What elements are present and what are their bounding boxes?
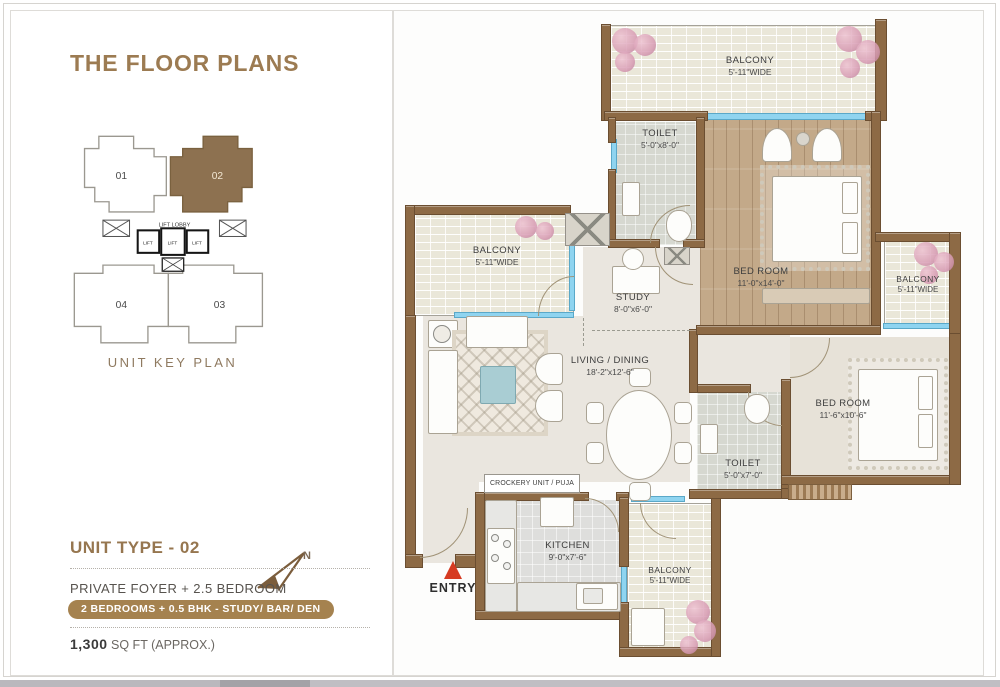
room-label-balcony-top: BALCONY 5'-11"WIDE bbox=[695, 55, 805, 78]
room-dim: 5'-0"x8'-0" bbox=[618, 140, 702, 151]
wall bbox=[609, 118, 615, 142]
window bbox=[612, 140, 616, 172]
duct-shaft bbox=[565, 213, 610, 246]
key-plan-unit-03-label: 03 bbox=[214, 300, 226, 311]
room-label-living-dining: LIVING / DINING 18'-2"x12'-6" bbox=[540, 355, 680, 378]
plant-decor bbox=[615, 52, 635, 72]
burner bbox=[503, 562, 511, 570]
sofa bbox=[428, 350, 458, 434]
room-label-balcony-left: BALCONY 5'-11"WIDE bbox=[447, 245, 547, 268]
dining-table bbox=[606, 390, 672, 480]
bottom-bar bbox=[0, 680, 1000, 687]
room-name: STUDY bbox=[590, 292, 676, 304]
sink-basin bbox=[583, 588, 603, 604]
wash-basin bbox=[622, 182, 640, 216]
unit-type-title: UNIT TYPE - 02 bbox=[70, 538, 200, 558]
key-plan-unit-02-label: 02 bbox=[212, 171, 224, 182]
room-label-bed-room-1: BED ROOM 11'-0"x14'-0" bbox=[706, 266, 816, 289]
room-dim: 5'-11"WIDE bbox=[627, 576, 713, 586]
key-plan-stairs-left bbox=[103, 220, 130, 236]
space-divider bbox=[592, 330, 690, 331]
room-dim: 5'-11"WIDE bbox=[695, 67, 805, 78]
pillow bbox=[842, 182, 858, 214]
separator bbox=[70, 568, 370, 569]
clock-decor bbox=[433, 325, 451, 343]
area-text: 1,300 SQ FT (APPROX.) bbox=[70, 636, 215, 652]
plant-decor bbox=[856, 40, 880, 64]
room-dim: 9'-0"x7'-6" bbox=[520, 552, 615, 563]
page-title: THE FLOOR PLANS bbox=[70, 50, 299, 77]
pillow bbox=[842, 222, 858, 254]
window bbox=[705, 114, 867, 119]
key-plan-unit-04-label: 04 bbox=[116, 300, 128, 311]
plant-decor bbox=[694, 620, 716, 642]
room-name: BALCONY bbox=[627, 565, 713, 576]
lift-label-3: LIFT bbox=[192, 241, 202, 246]
key-plan-stairs-right bbox=[219, 220, 246, 236]
wall bbox=[876, 20, 886, 120]
room-label-bed-room-2: BED ROOM 11'-6"x10'-6" bbox=[788, 398, 898, 421]
wall bbox=[697, 326, 880, 334]
separator bbox=[70, 627, 370, 628]
area-suffix: SQ FT (APPROX.) bbox=[108, 638, 215, 652]
wall bbox=[690, 490, 790, 498]
room-dim: 18'-2"x12'-6" bbox=[540, 367, 680, 378]
unit-key-plan: LIFT LOBBY LIFT LIFT LIFT 01 02 04 03 bbox=[62, 122, 287, 352]
room-name: BALCONY bbox=[695, 55, 805, 67]
desk bbox=[612, 266, 660, 294]
plant-decor bbox=[934, 252, 954, 272]
mirror bbox=[796, 132, 810, 146]
key-plan-caption: UNIT KEY PLAN bbox=[60, 355, 285, 370]
coffee-table bbox=[480, 366, 516, 404]
wall bbox=[602, 25, 610, 120]
unit-badge: 2 BEDROOMS + 0.5 BHK - STUDY/ BAR/ DEN bbox=[68, 600, 334, 619]
armchair bbox=[535, 390, 563, 422]
pillow bbox=[918, 414, 933, 448]
wall bbox=[690, 385, 750, 392]
wall bbox=[406, 316, 415, 563]
room-dim: 11'-0"x14'-0" bbox=[706, 278, 816, 289]
room-dim: 8'-0"x6'-0" bbox=[590, 304, 676, 315]
service-ledge bbox=[788, 484, 852, 500]
plant-decor bbox=[680, 636, 698, 654]
room-name: BED ROOM bbox=[706, 266, 816, 278]
lift-label-1: LIFT bbox=[143, 241, 153, 246]
room-label-study: STUDY 8'-0"x6'-0" bbox=[590, 292, 676, 315]
key-plan-unit-01-label: 01 bbox=[116, 171, 128, 182]
dining-chair bbox=[674, 442, 692, 464]
room-label-balcony-right: BALCONY 5'-11"WIDE bbox=[884, 274, 952, 295]
lift-label-2: LIFT bbox=[168, 241, 178, 246]
wall bbox=[620, 498, 628, 566]
toilet-wc bbox=[666, 210, 692, 242]
entry-arrow-icon bbox=[444, 561, 462, 579]
desk-chair bbox=[622, 248, 644, 270]
room-dim: 5'-0"x7'-0" bbox=[703, 470, 783, 481]
window bbox=[622, 563, 626, 603]
plant-decor bbox=[634, 34, 656, 56]
room-dim: 5'-11"WIDE bbox=[884, 285, 952, 295]
dining-chair bbox=[674, 402, 692, 424]
space-divider bbox=[583, 318, 584, 346]
room-label-toilet-2: TOILET 5'-0"x7'-0" bbox=[703, 458, 783, 481]
room-name: TOILET bbox=[703, 458, 783, 470]
room-dim: 5'-11"WIDE bbox=[447, 257, 547, 268]
unit-subtitle: PRIVATE FOYER + 2.5 BEDROOM bbox=[70, 581, 287, 596]
room-dim: 11'-6"x10'-6" bbox=[788, 410, 898, 421]
pillow bbox=[918, 376, 933, 410]
toilet-wc bbox=[744, 394, 770, 424]
dresser bbox=[762, 288, 870, 304]
wall bbox=[876, 233, 960, 241]
dining-chair bbox=[586, 402, 604, 424]
crockery-unit-label: CROCKERY UNIT / PUJA bbox=[484, 474, 580, 493]
wall bbox=[406, 206, 414, 324]
plant-decor bbox=[536, 222, 554, 240]
washing-machine bbox=[631, 608, 665, 646]
burner bbox=[503, 540, 511, 548]
room-name: BED ROOM bbox=[788, 398, 898, 410]
wall bbox=[782, 380, 790, 488]
wall bbox=[782, 476, 960, 484]
burner bbox=[491, 554, 499, 562]
room-label-kitchen: KITCHEN 9'-0"x7'-6" bbox=[520, 540, 615, 563]
room-name: KITCHEN bbox=[520, 540, 615, 552]
wall bbox=[476, 611, 628, 619]
window bbox=[884, 324, 950, 328]
room-label-toilet-1: TOILET 5'-0"x8'-0" bbox=[618, 128, 702, 151]
entry-label: ENTRY bbox=[420, 581, 486, 595]
dining-chair bbox=[586, 442, 604, 464]
burner bbox=[491, 534, 499, 542]
plant-decor bbox=[515, 216, 537, 238]
wall bbox=[872, 112, 880, 334]
plant-decor bbox=[840, 58, 860, 78]
room-label-balcony-bottom: BALCONY 5'-11"WIDE bbox=[627, 565, 713, 586]
wall bbox=[605, 112, 707, 120]
room-name: BALCONY bbox=[447, 245, 547, 257]
north-label: N bbox=[303, 550, 311, 562]
wall bbox=[476, 493, 484, 618]
wash-basin bbox=[700, 424, 718, 454]
fridge bbox=[540, 497, 574, 527]
corridor-floor bbox=[690, 332, 790, 392]
area-value: 1,300 bbox=[70, 636, 108, 652]
wall bbox=[950, 330, 960, 484]
room-name: TOILET bbox=[618, 128, 702, 140]
room-name: LIVING / DINING bbox=[540, 355, 680, 367]
sofa bbox=[466, 316, 528, 348]
room-name: BALCONY bbox=[884, 274, 952, 285]
wall bbox=[620, 648, 720, 656]
wall bbox=[408, 206, 570, 214]
wall bbox=[690, 330, 697, 392]
dining-chair bbox=[629, 482, 651, 501]
